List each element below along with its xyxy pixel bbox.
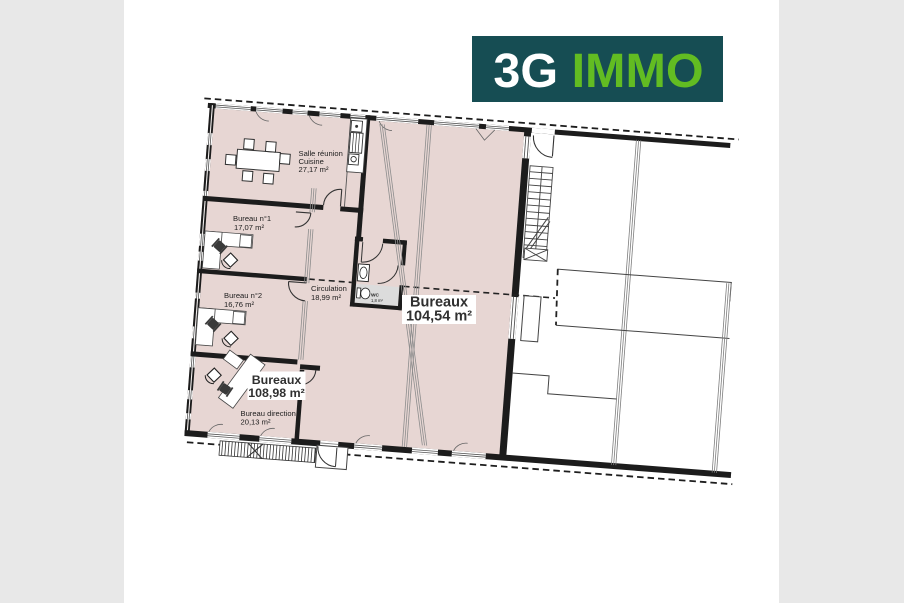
svg-text:Circulation: Circulation [311,284,347,293]
svg-text:1,8 m²: 1,8 m² [371,298,383,303]
svg-text:20,13 m²: 20,13 m² [241,418,271,427]
svg-text:17,07 m²: 17,07 m² [234,223,264,232]
svg-text:Bureaux: Bureaux [252,373,302,387]
svg-text:16,76 m²: 16,76 m² [224,300,254,309]
svg-text:27,17 m²: 27,17 m² [299,165,329,174]
svg-text:Bureau n°2: Bureau n°2 [224,291,262,300]
svg-text:Bureau n°1: Bureau n°1 [233,214,271,223]
svg-text:18,99 m²: 18,99 m² [311,293,341,302]
svg-text:3G IMMO: 3G IMMO [493,44,703,98]
svg-text:108,98 m²: 108,98 m² [248,386,304,400]
svg-text:104,54 m²: 104,54 m² [406,309,472,325]
